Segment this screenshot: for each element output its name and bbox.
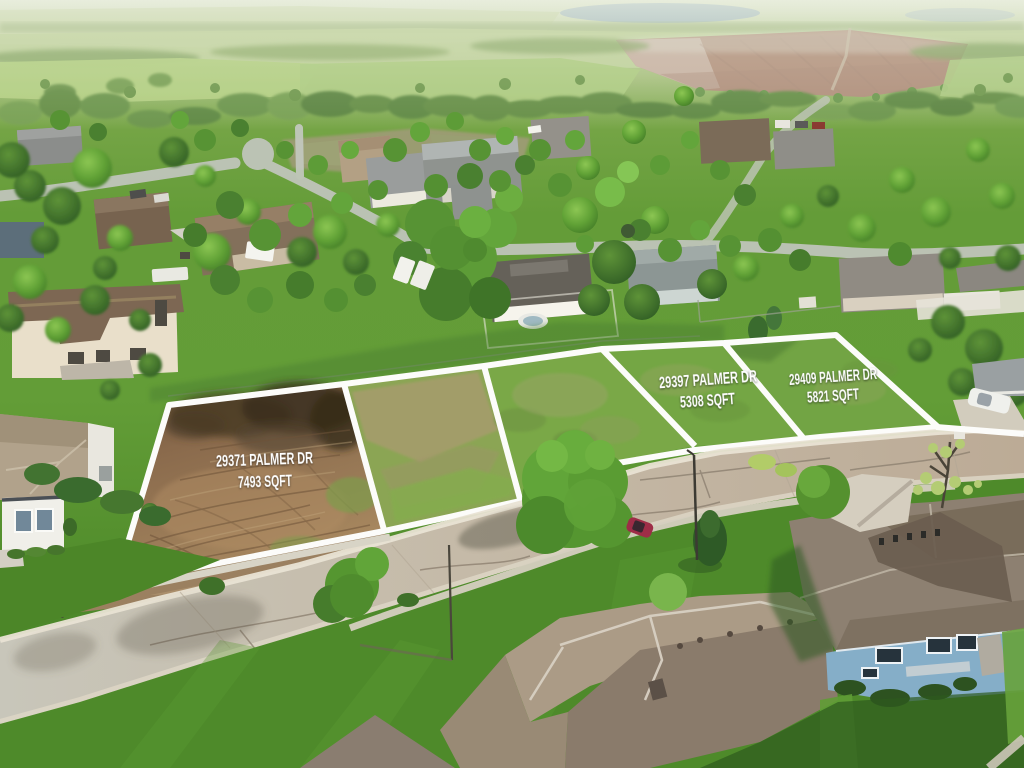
svg-text:5308 SQFT: 5308 SQFT [679,389,736,412]
svg-text:5821 SQFT: 5821 SQFT [807,386,860,407]
svg-text:29371 PALMER DR: 29371 PALMER DR [216,448,314,470]
svg-text:7493 SQFT: 7493 SQFT [238,471,293,492]
